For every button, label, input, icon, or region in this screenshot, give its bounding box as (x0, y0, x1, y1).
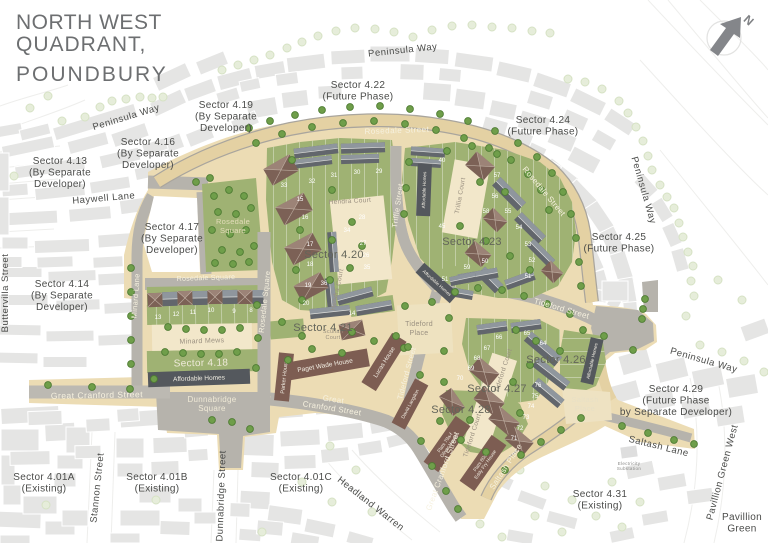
svg-text:Sector 4.22: Sector 4.22 (331, 80, 386, 91)
svg-text:51: 51 (442, 277, 449, 283)
svg-text:(Existing): (Existing) (22, 484, 67, 495)
svg-text:Sector 4.29: Sector 4.29 (649, 384, 704, 395)
svg-text:59: 59 (464, 265, 471, 271)
svg-text:32: 32 (309, 179, 316, 185)
svg-text:70: 70 (457, 376, 464, 382)
svg-text:53: 53 (525, 242, 532, 248)
svg-text:Rosedale: Rosedale (216, 217, 250, 226)
svg-text:33: 33 (281, 183, 288, 189)
svg-text:Sector 4.01A: Sector 4.01A (13, 472, 74, 483)
svg-text:54: 54 (516, 225, 523, 231)
svg-text:72: 72 (517, 426, 524, 432)
svg-text:(By Separate: (By Separate (117, 149, 179, 160)
svg-text:Place: Place (575, 404, 595, 413)
svg-text:(Existing): (Existing) (135, 484, 180, 495)
svg-text:36: 36 (627, 146, 634, 152)
svg-text:71: 71 (511, 436, 518, 442)
svg-text:20: 20 (615, 176, 622, 182)
svg-text:11: 11 (190, 310, 197, 316)
svg-text:Square: Square (220, 226, 246, 235)
svg-text:Developer): Developer) (34, 179, 86, 190)
svg-text:17: 17 (307, 242, 314, 248)
svg-text:Substation: Substation (617, 466, 641, 471)
svg-text:69: 69 (468, 366, 475, 372)
svg-text:57: 57 (494, 173, 501, 179)
svg-text:19: 19 (305, 283, 312, 289)
svg-text:10: 10 (208, 308, 215, 314)
svg-text:Sector 4.23: Sector 4.23 (442, 236, 502, 248)
svg-text:67: 67 (484, 346, 491, 352)
svg-text:64: 64 (540, 341, 547, 347)
svg-text:13: 13 (155, 315, 162, 321)
svg-text:55: 55 (505, 209, 512, 215)
svg-text:(Existing): (Existing) (578, 501, 623, 512)
svg-text:12: 12 (173, 312, 180, 318)
svg-text:(Future Phase): (Future Phase) (323, 92, 394, 103)
svg-text:Buttervilla Street: Buttervilla Street (0, 254, 11, 333)
svg-text:Developer): Developer) (122, 160, 174, 171)
svg-text:(Future Phase): (Future Phase) (508, 127, 579, 138)
svg-text:Dunnabridge: Dunnabridge (187, 395, 236, 404)
svg-text:Sector 4.17: Sector 4.17 (145, 222, 200, 233)
svg-text:Sector 4.14: Sector 4.14 (35, 279, 90, 290)
svg-text:Sector 4.31: Sector 4.31 (573, 489, 628, 500)
svg-text:56: 56 (492, 194, 499, 200)
svg-text:74: 74 (528, 404, 535, 410)
svg-text:29: 29 (376, 169, 383, 175)
svg-text:Sector 4.20: Sector 4.20 (304, 249, 364, 261)
svg-text:34: 34 (344, 228, 351, 234)
svg-text:15: 15 (297, 197, 304, 203)
svg-text:28: 28 (359, 215, 366, 221)
svg-text:68: 68 (474, 356, 481, 362)
svg-text:18: 18 (307, 262, 314, 268)
svg-text:Great Cranford Street: Great Cranford Street (51, 389, 144, 401)
svg-text:Green: Green (727, 524, 756, 535)
svg-text:75: 75 (532, 394, 539, 400)
svg-text:(Future Phase: (Future Phase (642, 396, 709, 407)
svg-text:45: 45 (439, 224, 446, 230)
svg-text:Square: Square (198, 404, 226, 413)
svg-text:(By Separate: (By Separate (195, 112, 257, 123)
svg-text:40: 40 (439, 158, 446, 164)
svg-text:73: 73 (523, 415, 530, 421)
svg-text:Court: Court (326, 335, 341, 341)
svg-text:Pavillion: Pavillion (722, 512, 762, 523)
svg-text:Sector 4.16: Sector 4.16 (121, 137, 176, 148)
svg-text:30: 30 (354, 170, 361, 176)
svg-text:Sector 4.01C: Sector 4.01C (270, 472, 332, 483)
svg-text:Sector 4.26: Sector 4.26 (526, 354, 586, 366)
svg-text:Sector 4.28: Sector 4.28 (431, 404, 491, 416)
svg-text:Place: Place (409, 330, 428, 337)
svg-text:Sector 4.18: Sector 4.18 (174, 358, 229, 370)
svg-text:50: 50 (482, 259, 489, 265)
svg-text:by Separate Developer): by Separate Developer) (620, 407, 732, 418)
svg-text:(Future Phase): (Future Phase) (584, 244, 655, 255)
svg-text:Sector 4.01B: Sector 4.01B (126, 472, 187, 483)
svg-text:Developer): Developer) (146, 245, 198, 256)
svg-text:Developer): Developer) (200, 123, 252, 134)
svg-text:36: 36 (321, 281, 328, 287)
svg-text:(Existing): (Existing) (279, 484, 324, 495)
svg-text:Sector 4.24: Sector 4.24 (516, 115, 571, 126)
svg-text:19: 19 (609, 154, 616, 160)
svg-text:20: 20 (303, 301, 310, 307)
svg-text:66: 66 (496, 335, 503, 341)
svg-text:31: 31 (331, 173, 338, 179)
svg-text:58: 58 (483, 209, 490, 215)
svg-text:Sector 4.19: Sector 4.19 (199, 100, 254, 111)
svg-text:16: 16 (302, 215, 309, 221)
svg-text:Sector 4.27: Sector 4.27 (467, 383, 527, 395)
svg-text:14: 14 (349, 311, 356, 317)
svg-text:Tideford: Tideford (405, 321, 433, 328)
svg-text:(By Separate: (By Separate (141, 234, 203, 245)
svg-text:POUNDBURY: POUNDBURY (16, 63, 168, 86)
svg-text:27: 27 (360, 241, 367, 247)
svg-text:76: 76 (535, 383, 542, 389)
svg-text:35: 35 (364, 265, 371, 271)
svg-text:Sector 4.21: Sector 4.21 (293, 322, 353, 334)
svg-text:(By Separate: (By Separate (31, 291, 93, 302)
svg-text:Sector 4.13: Sector 4.13 (33, 156, 88, 167)
svg-text:Sector 4.25: Sector 4.25 (592, 232, 647, 243)
svg-text:QUADRANT,: QUADRANT, (16, 33, 146, 56)
svg-text:51: 51 (525, 274, 532, 280)
svg-text:52: 52 (529, 258, 536, 264)
svg-text:NORTH WEST: NORTH WEST (16, 11, 162, 34)
svg-text:Saltash: Saltash (571, 395, 598, 404)
svg-text:Developer): Developer) (36, 302, 88, 313)
svg-text:(By Separate: (By Separate (29, 168, 91, 179)
svg-text:65: 65 (524, 331, 531, 337)
